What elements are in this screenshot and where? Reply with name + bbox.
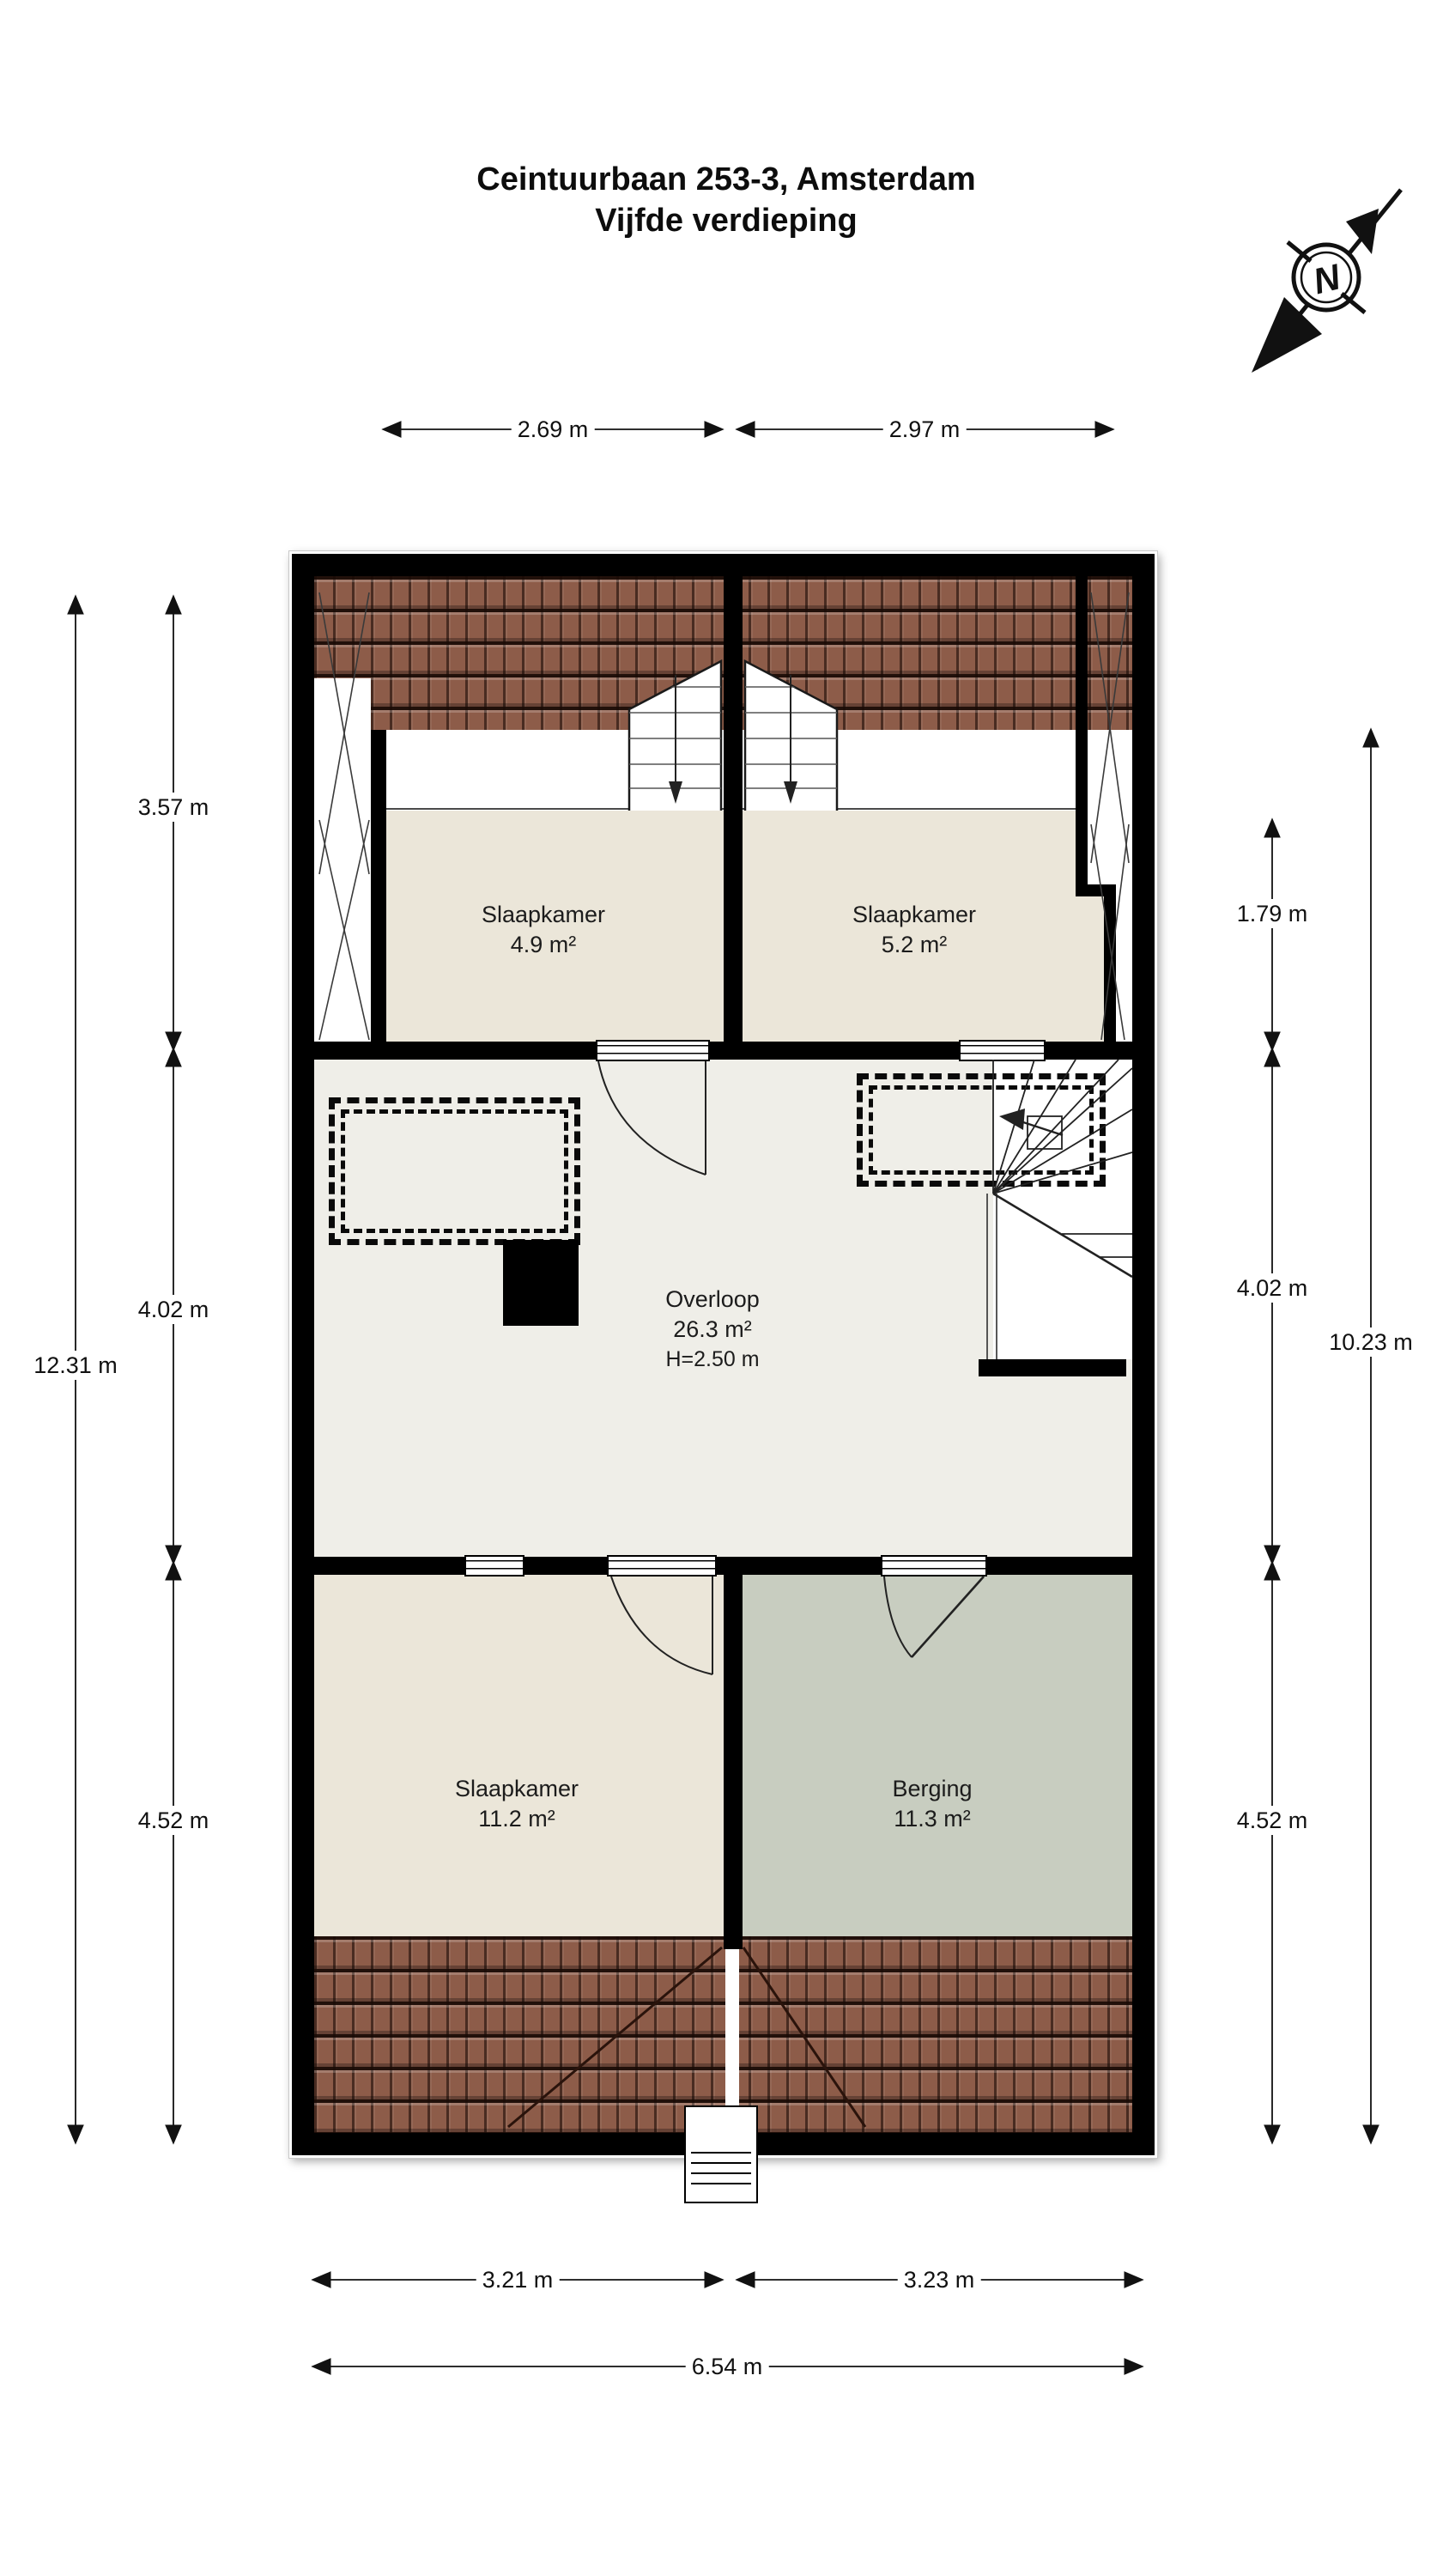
room-area: 5.2 m²: [852, 930, 976, 960]
door-arc-slaapkamer-tl: [598, 1061, 706, 1175]
room-area: 4.9 m²: [482, 930, 605, 960]
dim-left-1: 3.57 m: [132, 793, 215, 822]
door-leaf-berging: [912, 1577, 984, 1657]
dimension-lines: [76, 429, 1371, 2366]
dim-top-2: 2.97 m: [883, 415, 967, 444]
room-area: 11.3 m²: [892, 1804, 972, 1834]
dim-bottom-total: 6.54 m: [686, 2352, 769, 2381]
dim-left-2: 4.02 m: [132, 1295, 215, 1324]
label-overloop: Overloop 26.3 m² H=2.50 m: [665, 1285, 760, 1375]
room-name: Berging: [892, 1774, 972, 1804]
void-cross-left: [319, 592, 369, 1040]
door-arc-berging: [884, 1577, 912, 1657]
dim-bottom-2: 3.23 m: [898, 2265, 981, 2294]
dim-right-total: 10.23 m: [1323, 1327, 1419, 1357]
room-ceiling-height: H=2.50 m: [665, 1345, 760, 1375]
label-berging: Berging 11.3 m²: [892, 1774, 972, 1834]
dim-left-total: 12.31 m: [27, 1351, 124, 1380]
room-area: 11.2 m²: [455, 1804, 579, 1834]
label-slaapkamer-tl: Slaapkamer 4.9 m²: [482, 900, 605, 960]
floorplan-page: Ceintuurbaan 253-3, Amsterdam Vijfde ver…: [0, 0, 1449, 2576]
dim-right-1: 1.79 m: [1231, 899, 1314, 928]
dim-left-3: 4.52 m: [132, 1806, 215, 1835]
dim-top-1: 2.69 m: [512, 415, 595, 444]
label-slaapkamer-b: Slaapkamer 11.2 m²: [455, 1774, 579, 1834]
room-area: 26.3 m²: [665, 1315, 760, 1345]
staircase: [987, 1060, 1132, 1359]
dim-right-3: 4.52 m: [1231, 1806, 1314, 1835]
room-name: Overloop: [665, 1285, 760, 1315]
room-name: Slaapkamer: [455, 1774, 579, 1804]
label-slaapkamer-tr: Slaapkamer 5.2 m²: [852, 900, 976, 960]
dim-right-2: 4.02 m: [1231, 1273, 1314, 1303]
door-arc-slaapkamer-b: [611, 1577, 712, 1674]
dormer-left: [629, 661, 721, 811]
void-cross-right: [1091, 592, 1129, 1040]
room-name: Slaapkamer: [482, 900, 605, 930]
compass-north-icon: N: [1252, 190, 1401, 373]
door-swings: [598, 1061, 984, 1674]
roof-hip-lines: [508, 1947, 865, 2127]
dim-bottom-1: 3.21 m: [476, 2265, 560, 2294]
room-name: Slaapkamer: [852, 900, 976, 930]
dormer-right: [745, 661, 837, 811]
